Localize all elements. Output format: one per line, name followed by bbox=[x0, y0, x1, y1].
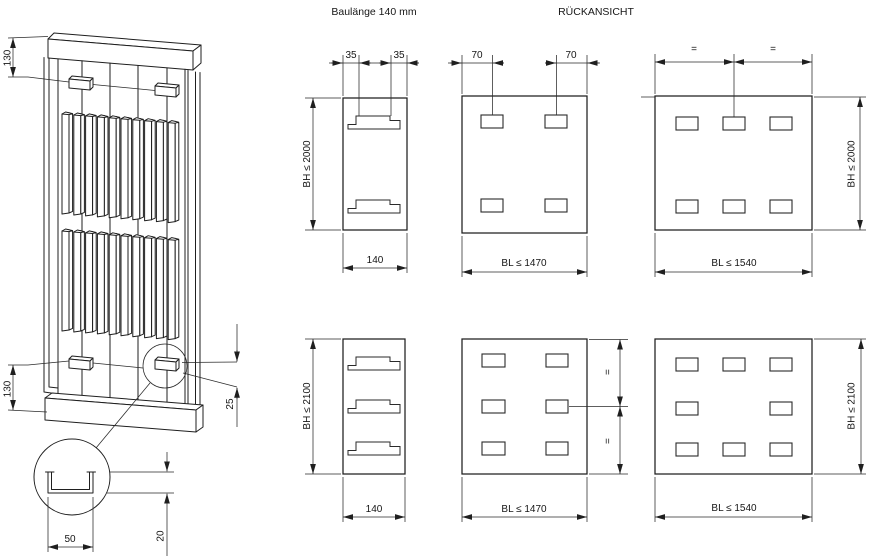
equal-mark-left: = bbox=[691, 44, 697, 55]
mounting-slot bbox=[546, 400, 568, 413]
mounting-slot bbox=[770, 117, 792, 130]
dim-label-bh2000-right: BH ≤ 2000 bbox=[847, 140, 858, 188]
mounting-slot bbox=[482, 354, 505, 367]
fin bbox=[168, 121, 179, 223]
mounting-slot bbox=[723, 200, 745, 213]
dim-label-bh2100-left: BH ≤ 2100 bbox=[302, 382, 313, 430]
dim-label-70-left: 70 bbox=[471, 50, 483, 61]
equal-mark-lower: = bbox=[601, 438, 612, 444]
fin bbox=[156, 120, 167, 222]
mounting-slot bbox=[676, 358, 698, 371]
dim-label-130-top: 130 bbox=[3, 49, 14, 66]
rear-panel-bottom-narrow: BH ≤ 2100 140 bbox=[302, 339, 405, 522]
dim-label-20: 20 bbox=[156, 530, 167, 542]
mounting-slot bbox=[770, 402, 792, 415]
fin bbox=[145, 119, 156, 221]
mounting-slot bbox=[482, 400, 505, 413]
mounting-slot bbox=[770, 358, 792, 371]
fin bbox=[109, 233, 120, 335]
fin bbox=[133, 235, 144, 337]
fin bbox=[97, 115, 108, 217]
fin bbox=[121, 234, 132, 336]
mounting-slot bbox=[481, 199, 503, 212]
fin bbox=[74, 113, 85, 215]
fin bbox=[62, 229, 73, 331]
mounting-slot bbox=[676, 200, 698, 213]
dim-label-50: 50 bbox=[64, 534, 76, 545]
fin bbox=[133, 118, 144, 220]
header-construction-length: Baulänge 140 mm bbox=[331, 6, 416, 18]
radiator-technical-drawing: Baulänge 140 mm RÜCKANSICHT bbox=[0, 0, 872, 560]
convector-fin-group-upper bbox=[62, 112, 179, 223]
mounting-slot bbox=[723, 358, 745, 371]
mounting-slot bbox=[723, 117, 745, 130]
mounting-hook-top-left bbox=[69, 76, 93, 90]
fin bbox=[156, 237, 167, 339]
fin bbox=[97, 232, 108, 334]
fin bbox=[145, 236, 156, 338]
mounting-slot bbox=[545, 115, 567, 128]
mounting-slot bbox=[482, 442, 505, 455]
convector-fin-group-lower bbox=[62, 229, 179, 340]
mounting-slot bbox=[676, 117, 698, 130]
fin bbox=[121, 117, 132, 219]
dim-label-35-right: 35 bbox=[393, 50, 405, 61]
mounting-hook-top-right bbox=[155, 83, 179, 97]
rear-panel-top-narrow: 35 35 BH ≤ 2000 140 bbox=[302, 50, 419, 273]
dim-label-140-bottom: 140 bbox=[366, 504, 383, 515]
mounting-slot bbox=[545, 199, 567, 212]
dim-label-140-top: 140 bbox=[367, 255, 384, 266]
u-channel-profile bbox=[46, 472, 96, 493]
mounting-slot bbox=[546, 442, 568, 455]
isometric-radiator-view bbox=[34, 33, 203, 515]
dim-label-35-left: 35 bbox=[345, 50, 357, 61]
technical-drawing-page: Baulänge 140 mm RÜCKANSICHT bbox=[0, 0, 872, 560]
dim-label-70-right: 70 bbox=[565, 50, 577, 61]
dim-label-130-bottom: 130 bbox=[3, 380, 14, 397]
rear-panel-bottom-mid: = = BL ≤ 1470 bbox=[462, 339, 628, 522]
mounting-slot bbox=[546, 354, 568, 367]
dim-label-bl1540-bottom: BL ≤ 1540 bbox=[711, 503, 757, 514]
fin bbox=[168, 238, 179, 340]
rear-panel-bottom-wide: BH ≤ 2100 BL ≤ 1540 bbox=[655, 339, 866, 522]
mounting-hook-bottom-left bbox=[69, 356, 93, 370]
dim-label-bh2000-left: BH ≤ 2000 bbox=[302, 140, 313, 188]
dim-label-bl1470-bottom: BL ≤ 1470 bbox=[501, 504, 547, 515]
fin bbox=[74, 230, 85, 332]
dim-label-bl1470-top: BL ≤ 1470 bbox=[501, 258, 547, 269]
rear-panel-top-mid: 70 70 BL ≤ 1470 bbox=[448, 50, 600, 277]
mounting-slot bbox=[676, 402, 698, 415]
equal-mark-right: = bbox=[770, 44, 776, 55]
equal-mark-upper: = bbox=[601, 369, 612, 375]
dim-label-bl1540-top: BL ≤ 1540 bbox=[711, 258, 757, 269]
mounting-slot bbox=[481, 115, 503, 128]
mounting-slot bbox=[676, 443, 698, 456]
mounting-slot bbox=[723, 443, 745, 456]
detail-zoom-circle bbox=[34, 439, 110, 515]
header-rear-view: RÜCKANSICHT bbox=[558, 6, 634, 18]
mounting-slot bbox=[770, 200, 792, 213]
fin bbox=[86, 114, 97, 216]
fin bbox=[86, 231, 97, 333]
bottom-rail-end-face bbox=[196, 405, 203, 432]
rear-panel-top-wide: = = BH ≤ 2000 BL ≤ 1540 bbox=[641, 44, 866, 277]
dim-label-25: 25 bbox=[225, 398, 236, 410]
right-channel bbox=[188, 71, 200, 408]
fin bbox=[62, 112, 73, 214]
fin bbox=[109, 116, 120, 218]
mounting-slot bbox=[770, 443, 792, 456]
mounting-hook-bottom-right bbox=[155, 357, 179, 371]
left-channel bbox=[44, 58, 58, 395]
dim-label-bh2100-right: BH ≤ 2100 bbox=[847, 382, 858, 430]
